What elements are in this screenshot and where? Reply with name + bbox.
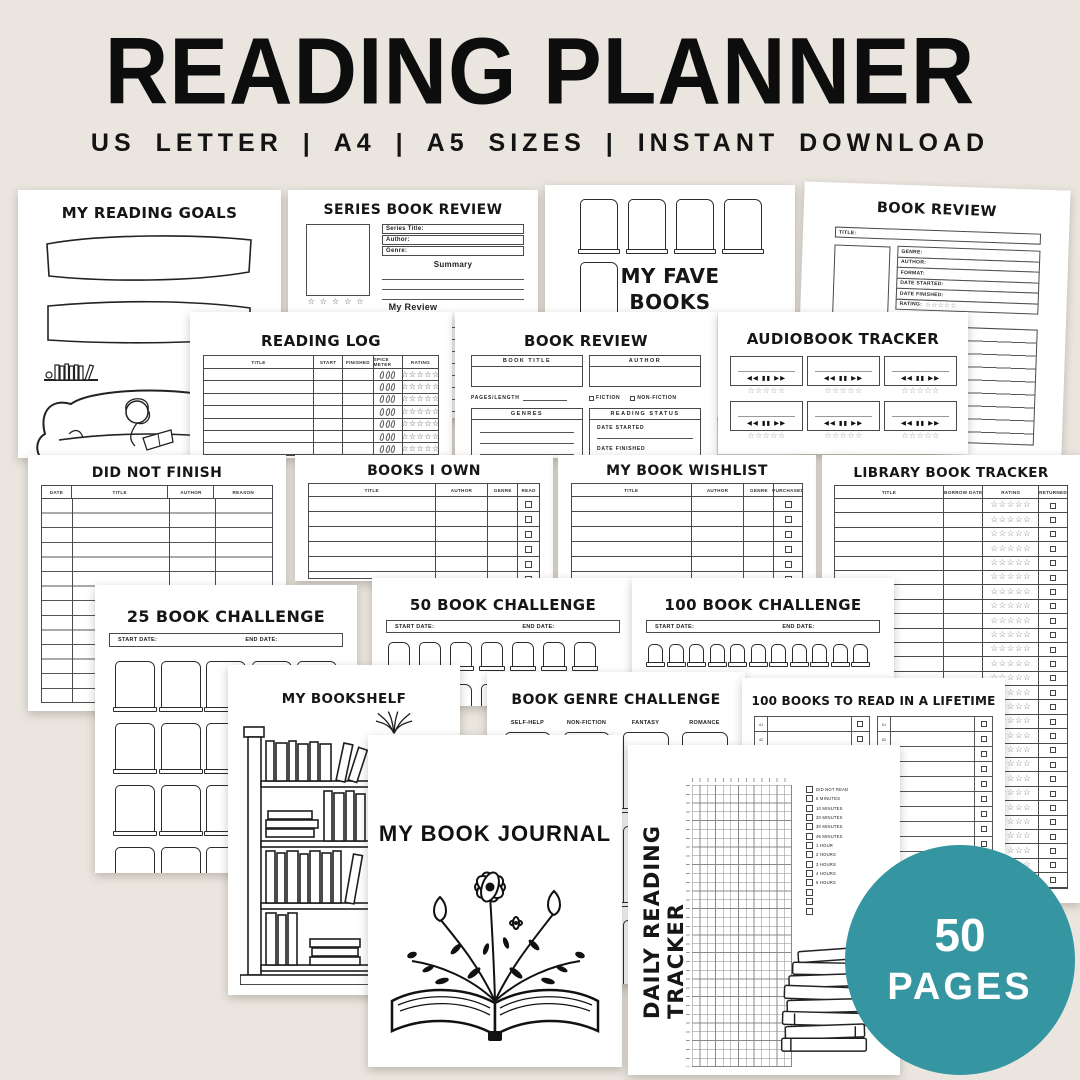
genre-label: ROMANCE (689, 720, 720, 726)
my-review-label: My Review (288, 302, 538, 312)
rating-stars: ☆☆☆☆☆ (401, 445, 439, 453)
page-title: BOOK GENRE CHALLENGE (487, 692, 745, 708)
spice-meter-icons (374, 369, 403, 380)
legend-checkbox (806, 851, 813, 858)
column-header: AUTHOR (168, 486, 214, 498)
purchased-checkbox (785, 546, 792, 553)
nonfiction-label: NON-FICTION (637, 395, 676, 401)
author-label: Author: (383, 237, 410, 243)
book-title-label: BOOK TITLE (472, 356, 582, 367)
column-header: TITLE (309, 484, 436, 496)
returned-checkbox (1050, 704, 1056, 710)
rating-stars: ☆☆☆☆☆ (991, 631, 1032, 640)
rating-stars: ☆☆☆☆☆ (401, 395, 439, 403)
format-field-label: FORMAT: (898, 269, 925, 276)
rating-stars: ☆☆☆☆☆ (401, 408, 439, 416)
returned-checkbox (1050, 589, 1056, 595)
read-checkbox (525, 561, 532, 568)
column-header: REASON (214, 486, 272, 498)
returned-checkbox (1050, 560, 1056, 566)
legend-checkbox (806, 898, 813, 905)
page-title: MY READING GOALS (18, 204, 281, 222)
returned-checkbox (1050, 762, 1056, 768)
forward-icon: ▶▶ (774, 374, 786, 382)
returned-checkbox (1050, 834, 1056, 840)
pause-icon: ▮▮ (839, 419, 848, 427)
date-finished-label: DATE FINISHED: (897, 290, 944, 298)
rewind-icon: ◀◀ (824, 419, 836, 427)
returned-checkbox (1050, 618, 1056, 624)
bookshelf-illustration (240, 721, 372, 985)
read-checkbox (525, 546, 532, 553)
forward-icon: ▶▶ (851, 374, 863, 382)
start-date-label: START DATE: (395, 624, 434, 630)
reading-tracker-grid (692, 785, 792, 1067)
grid-row-ticks (686, 785, 690, 1067)
rating-stars: ☆☆☆☆☆ (925, 302, 957, 310)
page-title: 100 BOOKS TO READ IN A LIFETIME (742, 694, 1005, 708)
spice-meter-icons (374, 443, 403, 454)
rating-stars: ☆☆☆☆☆ (991, 588, 1032, 597)
end-date-label: END DATE: (782, 624, 814, 630)
tracker-legend: DID NOT READ5 MINUTES10 MINUTES20 MINUTE… (806, 785, 848, 887)
row-number: 61 (878, 717, 891, 731)
returned-checkbox (1050, 819, 1056, 825)
read-checkbox (857, 736, 863, 742)
book-cover-placeholder (306, 224, 370, 296)
column-header: READ (518, 484, 539, 496)
rewind-icon: ◀◀ (901, 374, 913, 382)
page-book-wishlist: MY BOOK WISHLIST TITLE AUTHOR GENRE PURC… (558, 455, 816, 581)
forward-icon: ▶▶ (851, 419, 863, 427)
rating-stars: ☆☆☆☆☆ (991, 645, 1032, 654)
rating-stars: ☆☆☆☆☆ (401, 383, 439, 391)
pause-icon: ▮▮ (762, 419, 771, 427)
read-checkbox (981, 721, 987, 727)
table-rows (572, 497, 802, 579)
read-checkbox (525, 516, 532, 523)
read-checkbox (981, 781, 987, 787)
returned-checkbox (1050, 675, 1056, 681)
author-label: AUTHOR (590, 356, 700, 367)
returned-checkbox (1050, 575, 1056, 581)
log-rows: ☆☆☆☆☆ ☆☆☆☆☆ ☆☆☆☆☆ ☆☆☆☆☆ ☆☆☆☆☆ ☆☆☆☆☆ ☆☆☆☆… (204, 369, 438, 456)
rating-stars: ☆☆☆☆☆ (807, 432, 880, 440)
page-title: MY BOOK WISHLIST (558, 463, 816, 479)
legend-checkbox (806, 786, 813, 793)
read-checkbox (525, 531, 532, 538)
legend-label: 45 MINUTES (816, 834, 843, 839)
rating-stars: ☆☆☆☆☆ (991, 617, 1032, 626)
column-header: SPICE METER (374, 356, 403, 368)
purchased-checkbox (785, 561, 792, 568)
rating-stars: ☆☆☆☆☆ (401, 433, 439, 441)
legend-label: 5 HOURS (816, 880, 836, 885)
page-book-journal-cover: MY BOOK JOURNAL (368, 735, 622, 1067)
product-subtitle: US LETTER | A4 | A5 SIZES | INSTANT DOWN… (0, 129, 1080, 158)
legend-extra-boxes (806, 888, 813, 916)
rating-stars: ☆☆☆☆☆ (884, 387, 957, 395)
genre-label: NON-FICTION (567, 720, 606, 726)
rating-stars: ☆☆☆☆☆ (991, 530, 1032, 539)
table-rows (309, 497, 539, 579)
page-title: 50 BOOK CHALLENGE (372, 596, 634, 614)
reading-status-label: READING STATUS (590, 409, 700, 420)
row-number: 62 (878, 732, 891, 746)
fiction-label: FICTION (596, 395, 620, 401)
returned-checkbox (1050, 661, 1056, 667)
read-checkbox (857, 721, 863, 727)
pause-icon: ▮▮ (839, 374, 848, 382)
returned-checkbox (1050, 603, 1056, 609)
rating-stars: ☆☆☆☆☆ (991, 602, 1032, 611)
rewind-icon: ◀◀ (824, 374, 836, 382)
date-finished-label: DATE FINISHED (597, 446, 700, 452)
page-books-i-own: BOOKS I OWN TITLE AUTHOR GENRE READ (295, 455, 553, 581)
returned-checkbox (1050, 848, 1056, 854)
fill-line (523, 400, 567, 401)
spice-meter-icons (374, 394, 403, 405)
product-title: READING PLANNER (0, 16, 1080, 126)
page-title: AUDIOBOOK TRACKER (718, 330, 968, 348)
page-reading-log: READING LOG TITLE START FINISHED SPICE M… (190, 312, 452, 458)
rating-stars: ☆☆☆☆☆ (991, 516, 1032, 525)
column-header: DATE (42, 486, 72, 498)
read-checkbox (981, 736, 987, 742)
legend-label: 5 MINUTES (816, 796, 840, 801)
legend-checkbox (806, 842, 813, 849)
goal-banner (42, 230, 256, 286)
read-checkbox (981, 751, 987, 757)
page-title: 100 BOOK CHALLENGE (632, 596, 894, 614)
page-count-value: 50 (934, 912, 985, 958)
legend-checkbox (806, 814, 813, 821)
returned-checkbox (1050, 503, 1056, 509)
returned-checkbox (1050, 531, 1056, 537)
rewind-icon: ◀◀ (901, 419, 913, 427)
rating-stars: ☆☆☆☆☆ (991, 559, 1032, 568)
rating-stars: ☆☆☆☆☆ (807, 387, 880, 395)
column-header: RATING (403, 356, 438, 368)
author-field-label: AUTHOR: (898, 259, 926, 266)
rating-stars: ☆☆☆☆☆ (884, 432, 957, 440)
forward-icon: ▶▶ (774, 419, 786, 427)
page-book-review-mid: BOOK REVIEW BOOK TITLE AUTHOR PAGES/LENG… (455, 312, 717, 458)
returned-checkbox (1050, 733, 1056, 739)
row-number: 41 (755, 717, 768, 731)
column-header: BORROW DATE (944, 486, 983, 498)
genre-label: SELF-HELP (511, 720, 544, 726)
returned-checkbox (1050, 805, 1056, 811)
purchased-checkbox (785, 531, 792, 538)
page-title: DID NOT FINISH (28, 465, 286, 481)
rating-stars: ☆☆☆☆☆ (401, 371, 439, 379)
page-title: SERIES BOOK REVIEW (288, 202, 538, 218)
legend-checkbox (806, 805, 813, 812)
page-count-label: PAGES (887, 966, 1032, 1009)
returned-checkbox (1050, 877, 1056, 883)
column-header: TITLE (835, 486, 944, 498)
returned-checkbox (1050, 517, 1056, 523)
returned-checkbox (1050, 647, 1056, 653)
series-title-label: Series Title: (383, 226, 424, 232)
legend-checkbox (806, 833, 813, 840)
end-date-label: END DATE: (522, 624, 554, 630)
column-header: START (314, 356, 343, 368)
row-number: 42 (755, 732, 768, 746)
plant-icon (375, 709, 413, 735)
read-checkbox (981, 766, 987, 772)
pages-length-label: PAGES/LENGTH (471, 395, 520, 401)
pause-icon: ▮▮ (762, 374, 771, 382)
legend-checkbox (806, 823, 813, 830)
legend-label: 1 HOUR (816, 843, 833, 848)
read-checkbox (981, 826, 987, 832)
column-header: TITLE (204, 356, 314, 368)
page-title: LIBRARY BOOK TRACKER (822, 465, 1080, 481)
date-started-label: DATE STARTED: (897, 280, 944, 288)
summary-label: Summary (382, 260, 524, 269)
genre-label: Genre: (383, 248, 407, 254)
returned-checkbox (1050, 791, 1056, 797)
pause-icon: ▮▮ (916, 419, 925, 427)
page-title-line1: MY FAVE (545, 263, 795, 289)
audiobook-slots: ◀◀ ▮▮ ▶▶ ☆☆☆☆☆ ◀◀ ▮▮ ▶▶ ☆☆☆☆☆ (730, 356, 958, 440)
page-title: BOOK REVIEW (804, 197, 1070, 222)
rating-label: RATING: (896, 301, 922, 308)
legend-checkbox (806, 889, 813, 896)
column-header: RETURNED (1039, 486, 1067, 498)
start-date-label: START DATE: (118, 637, 157, 643)
legend-checkbox (806, 908, 813, 915)
fiction-checkbox (589, 396, 594, 401)
genre-label: FANTASY (632, 720, 659, 726)
read-checkbox (525, 501, 532, 508)
rewind-icon: ◀◀ (747, 374, 759, 382)
legend-label: DID NOT READ (816, 787, 848, 792)
legend-label: 20 MINUTES (816, 815, 843, 820)
read-checkbox (981, 796, 987, 802)
forward-icon: ▶▶ (928, 374, 940, 382)
returned-checkbox (1050, 546, 1056, 552)
end-date-label: END DATE: (245, 637, 277, 643)
legend-checkbox (806, 795, 813, 802)
column-header: AUTHOR (436, 484, 489, 496)
page-title: 25 BOOK CHALLENGE (95, 607, 357, 626)
rating-stars: ☆☆☆☆☆ (991, 501, 1032, 510)
grid-column-ticks (692, 778, 792, 782)
flower-book-illustration (382, 853, 608, 1053)
book-cover-placeholder (832, 245, 890, 319)
date-started-label: DATE STARTED (597, 425, 700, 431)
legend-label: 10 MINUTES (816, 806, 843, 811)
returned-checkbox (1050, 690, 1056, 696)
genre-field-label: GENRE: (898, 249, 922, 256)
rating-stars: ☆☆☆☆☆ (991, 660, 1032, 669)
page-audiobook-tracker: AUDIOBOOK TRACKER ◀◀ ▮▮ ▶▶ ☆☆☆☆☆ ◀◀ ▮▮ ▶… (718, 312, 968, 454)
pause-icon: ▮▮ (916, 374, 925, 382)
legend-label: 3 HOURS (816, 862, 836, 867)
column-header: FINISHED (343, 356, 373, 368)
rating-stars: ☆☆☆☆☆ (730, 387, 803, 395)
fill-line (597, 438, 693, 439)
column-header: TITLE (572, 484, 692, 496)
legend-checkbox (806, 879, 813, 886)
page-title: BOOK REVIEW (455, 332, 717, 350)
start-date-label: START DATE: (655, 624, 694, 630)
nonfiction-checkbox (630, 396, 635, 401)
page-title: DAILY READING TRACKER (640, 779, 688, 1019)
genres-label: GENRES (472, 409, 582, 420)
read-checkbox (981, 811, 987, 817)
legend-label: 4 HOURS (816, 871, 836, 876)
spice-meter-icons (374, 431, 403, 442)
column-header: AUTHOR (692, 484, 745, 496)
page-count-badge: 50 PAGES (845, 845, 1075, 1075)
column-header: PURCHASED (774, 484, 802, 496)
column-header: GENRE (744, 484, 774, 496)
returned-checkbox (1050, 862, 1056, 868)
column-header: TITLE (72, 486, 169, 498)
page-title: BOOKS I OWN (295, 463, 553, 479)
cover-title: MY BOOK JOURNAL (368, 821, 622, 847)
summary-lines (382, 270, 524, 300)
rating-stars: ☆☆☆☆☆ (991, 573, 1032, 582)
rating-stars: ☆☆☆☆☆ (730, 432, 803, 440)
spice-meter-icons (374, 419, 403, 430)
fave-books-row (580, 199, 762, 251)
returned-checkbox (1050, 632, 1056, 638)
returned-checkbox (1050, 719, 1056, 725)
genres-lines (480, 422, 574, 458)
page-title: READING LOG (190, 332, 452, 350)
spice-meter-icons (374, 381, 403, 392)
returned-checkbox (1050, 776, 1056, 782)
legend-checkbox (806, 861, 813, 868)
rewind-icon: ◀◀ (747, 419, 759, 427)
legend-label: 2 HOURS (816, 852, 836, 857)
rating-stars: ☆☆☆☆☆ (991, 545, 1032, 554)
purchased-checkbox (785, 516, 792, 523)
column-header: RATING (983, 486, 1039, 498)
rating-stars: ☆☆☆☆☆ (401, 420, 439, 428)
legend-checkbox (806, 870, 813, 877)
spice-meter-icons (374, 406, 403, 417)
column-header: GENRE (488, 484, 518, 496)
returned-checkbox (1050, 747, 1056, 753)
forward-icon: ▶▶ (928, 419, 940, 427)
title-field-label: TITLE: (836, 229, 857, 236)
purchased-checkbox (785, 501, 792, 508)
legend-label: 30 MINUTES (816, 824, 843, 829)
page-title: MY BOOKSHELF (228, 691, 460, 707)
